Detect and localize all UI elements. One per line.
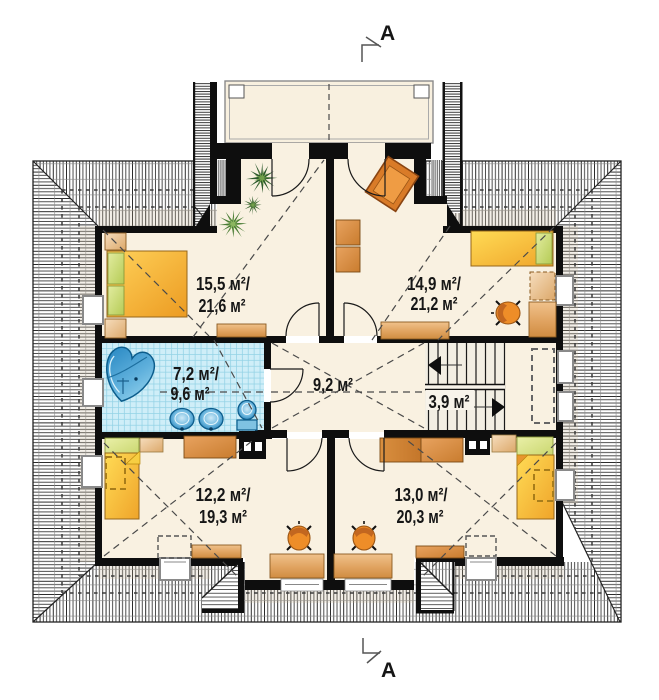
svg-text:7,2 м²/: 7,2 м²/ [173, 363, 219, 384]
svg-text:21,6 м²: 21,6 м² [199, 295, 246, 316]
svg-text:9,6 м²: 9,6 м² [171, 383, 210, 404]
svg-text:19,3 м²: 19,3 м² [199, 506, 247, 527]
svg-text:14,9 м²/: 14,9 м²/ [407, 273, 461, 294]
svg-text:9,2 м²: 9,2 м² [313, 374, 353, 395]
svg-text:3,9 м²: 3,9 м² [429, 391, 470, 412]
svg-text:15,5 м²/: 15,5 м²/ [196, 273, 250, 294]
svg-text:13,0 м²/: 13,0 м²/ [395, 484, 448, 505]
svg-text:A: A [381, 659, 396, 682]
svg-text:20,3 м²: 20,3 м² [397, 506, 444, 527]
svg-text:21,2 м²: 21,2 м² [411, 293, 458, 314]
svg-text:12,2 м²/: 12,2 м²/ [196, 484, 251, 505]
svg-text:A: A [380, 22, 395, 45]
